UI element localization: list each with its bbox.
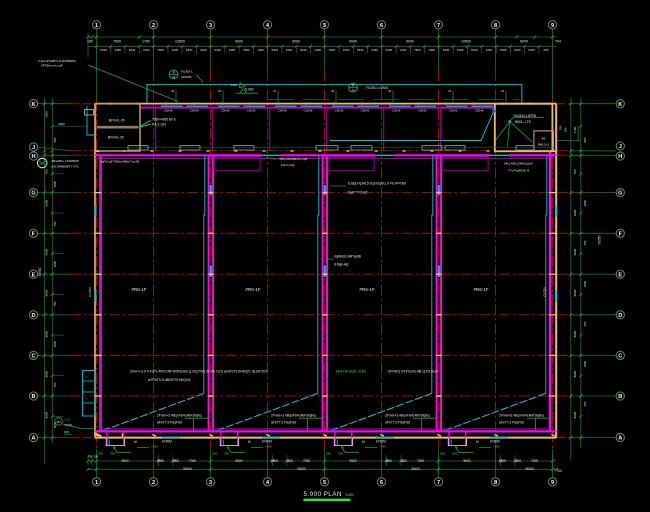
svg-text:39550: 39550 <box>598 235 602 244</box>
svg-text:K: K <box>31 102 35 108</box>
svg-text:3: 3 <box>209 23 212 29</box>
svg-text:4BqLBFe CFbFBMP: 4BqLBFe CFbFBMP <box>52 159 79 163</box>
svg-text:#R6-1F: #R6-1F <box>131 287 147 292</box>
svg-text:Y6LM2A 14FRB: Y6LM2A 14FRB <box>513 114 536 118</box>
svg-text:2250: 2250 <box>53 180 57 187</box>
svg-text:1450: 1450 <box>400 48 407 52</box>
svg-text:4qFeLq5T4B0dJ4BhdTqL4B: 4qFeLq5T4B0dJ4BhdTqL4B <box>100 160 139 164</box>
svg-text:5440: 5440 <box>100 48 107 52</box>
svg-text:K: K <box>618 102 622 108</box>
svg-text:A: A <box>618 436 622 442</box>
svg-text:C3045: C3045 <box>449 108 458 112</box>
svg-text:nJS005: nJS005 <box>181 75 192 79</box>
svg-text:aFsT7:3 FSqFSd: aFsT7:3 FSqFSd <box>157 421 182 425</box>
svg-text:9000: 9000 <box>349 39 357 43</box>
svg-text:8: 8 <box>352 84 354 88</box>
svg-text:6: 6 <box>380 23 383 29</box>
svg-text:5440: 5440 <box>129 48 136 52</box>
svg-text:3000: 3000 <box>45 199 49 206</box>
svg-text:3800: 3800 <box>400 459 407 463</box>
svg-text:4FTBmm+LnqP: 4FTBmm+LnqP <box>41 64 63 68</box>
svg-text:C3045: C3045 <box>221 108 230 112</box>
svg-text:704: 704 <box>556 469 562 473</box>
svg-text:M: M <box>476 440 479 444</box>
svg-text:5440: 5440 <box>528 48 535 52</box>
svg-text:1000: 1000 <box>514 48 521 52</box>
svg-text:bqET7?3JqT: bqET7?3JqT <box>348 190 367 194</box>
svg-text:5440: 5440 <box>471 48 478 52</box>
svg-text:8000: 8000 <box>573 330 577 337</box>
svg-text:aYFbT3-5 dBGFSTbKQX6: aYFbT3-5 dBGFSTbKQX6 <box>148 378 191 382</box>
svg-text:8000: 8000 <box>45 248 49 255</box>
svg-text:5500: 5500 <box>121 459 128 463</box>
svg-text:5: 5 <box>323 480 326 486</box>
svg-text:26100: 26100 <box>297 467 306 471</box>
svg-text:C: C <box>618 354 622 360</box>
svg-text:C3045: C3045 <box>392 108 401 112</box>
svg-text:M: M <box>134 440 137 444</box>
svg-text:1450: 1450 <box>314 48 321 52</box>
svg-text:5440: 5440 <box>386 48 393 52</box>
svg-text:2250: 2250 <box>53 260 57 267</box>
svg-text:1:201: 1:201 <box>345 493 354 497</box>
svg-text:26100: 26100 <box>411 467 420 471</box>
svg-text:3: 3 <box>209 480 212 486</box>
svg-text:250: 250 <box>212 451 217 455</box>
svg-text:250: 250 <box>326 451 331 455</box>
svg-text:0.2mmHdJBYLGJFRtB4BO: 0.2mmHdJBYLGJFRtB4BO <box>38 59 77 63</box>
svg-text:#R6-1F: #R6-1F <box>245 287 261 292</box>
svg-text:3800: 3800 <box>573 209 577 216</box>
svg-text:1:12: 1:12 <box>65 417 71 421</box>
svg-text:1000: 1000 <box>428 48 435 52</box>
svg-text:7: 7 <box>437 23 440 29</box>
svg-text:750: 750 <box>583 321 587 326</box>
svg-text:6000: 6000 <box>520 39 528 43</box>
svg-text:1000: 1000 <box>172 48 179 52</box>
svg-text:2450: 2450 <box>115 48 122 52</box>
svg-text:8000: 8000 <box>573 411 577 418</box>
svg-text:2250: 2250 <box>53 340 57 347</box>
svg-text:750: 750 <box>53 221 57 226</box>
svg-text:5440: 5440 <box>214 48 221 52</box>
svg-text:FJL1-1(q): FJL1-1(q) <box>281 163 294 167</box>
svg-text:2mm+3.0 FJSTL4bKCNFS0fSLB0 (LS: 2mm+3.0 FJSTL4bKCNFS0fSLB0 (LSQYW) ZFbE … <box>130 370 269 374</box>
svg-text:GYZ06: GYZ06 <box>88 287 92 297</box>
svg-text:A: A <box>31 436 35 442</box>
svg-text:C3045: C3045 <box>475 108 484 112</box>
svg-text:9: 9 <box>551 480 554 486</box>
svg-text:3800: 3800 <box>172 459 179 463</box>
svg-text:750: 750 <box>573 169 577 174</box>
svg-text:F: F <box>32 231 36 237</box>
svg-text:C3045: C3045 <box>164 108 173 112</box>
svg-text:~360: ~360 <box>151 445 158 449</box>
svg-text:J4: J4 <box>351 88 355 92</box>
svg-text:7500: 7500 <box>243 48 250 52</box>
svg-text:aFsT7:3 FSqFSd: aFsT7:3 FSqFSd <box>271 421 296 425</box>
svg-text:8000: 8000 <box>45 289 49 296</box>
svg-text:C3045: C3045 <box>304 108 313 112</box>
svg-text:8000: 8000 <box>573 248 577 255</box>
svg-text:5440: 5440 <box>357 48 364 52</box>
svg-text:10500: 10500 <box>461 39 471 43</box>
svg-text:G: G <box>618 191 622 197</box>
svg-text:8000: 8000 <box>573 370 577 377</box>
svg-text:7000: 7000 <box>417 459 424 463</box>
svg-text:J: J <box>619 144 622 150</box>
svg-text:C3045: C3045 <box>335 108 344 112</box>
svg-text:750: 750 <box>88 455 93 459</box>
svg-text:7000: 7000 <box>189 459 196 463</box>
svg-text:E: E <box>618 272 622 278</box>
svg-text:800: 800 <box>583 137 587 142</box>
svg-text:7560×4050BFJL FqB: 7560×4050BFJL FqB <box>278 157 307 161</box>
svg-text:BFS4L-2F: BFS4L-2F <box>109 119 126 123</box>
svg-text:~360: ~360 <box>265 445 272 449</box>
svg-text:9000: 9000 <box>235 39 243 43</box>
svg-text:9: 9 <box>551 23 554 29</box>
svg-text:8: 8 <box>173 70 175 74</box>
svg-text:5440: 5440 <box>271 48 278 52</box>
svg-text:J4: J4 <box>172 75 176 79</box>
svg-text:4B: 4B <box>542 137 546 141</box>
svg-text:1: 1 <box>95 480 98 486</box>
svg-text:7500: 7500 <box>500 48 507 52</box>
svg-text:2450: 2450 <box>200 48 207 52</box>
svg-text:aFsT7:3 FSqFSd: aFsT7:3 FSqFSd <box>499 421 524 425</box>
svg-text:T7LF4qFB3K B: T7LF4qFB3K B <box>508 168 529 172</box>
svg-text:5800: 5800 <box>271 459 278 463</box>
svg-text:7000: 7000 <box>531 459 538 463</box>
svg-text:5800: 5800 <box>157 459 164 463</box>
svg-text:2450: 2450 <box>371 48 378 52</box>
svg-text:bJ3qLFq34L5 6qJX2qSLL4 FbJF4TB: bJ3qLFq34L5 6qJX2qSLL4 FbJF4TB0 <box>348 181 406 185</box>
svg-text:4700: 4700 <box>573 126 577 133</box>
svg-text:b4LLMELD4B3qGq4: b4LLMELD4B3qGq4 <box>504 161 533 165</box>
svg-text:7560×4050 BFJL: 7560×4050 BFJL <box>152 117 177 121</box>
svg-text:350: 350 <box>224 451 229 455</box>
svg-text:G: G <box>31 191 35 197</box>
svg-text:7500: 7500 <box>157 48 164 52</box>
svg-text:39550: 39550 <box>38 267 42 276</box>
svg-text:3800: 3800 <box>514 459 521 463</box>
svg-text:C3045: C3045 <box>278 108 287 112</box>
svg-text:6×50M: 6×50M <box>262 440 272 444</box>
svg-text:7500: 7500 <box>414 48 421 52</box>
svg-text:750: 750 <box>583 240 587 245</box>
svg-text:J: J <box>32 145 35 151</box>
svg-text:8: 8 <box>494 480 497 486</box>
svg-text:#R6-1F: #R6-1F <box>473 287 489 292</box>
svg-text:6×50M: 6×50M <box>490 440 500 444</box>
svg-text:D: D <box>31 313 35 319</box>
svg-text:FSJ05-1: FSJ05-1 <box>181 70 193 74</box>
svg-text:M: M <box>248 440 251 444</box>
svg-text:5440: 5440 <box>300 48 307 52</box>
svg-text:26100: 26100 <box>525 467 534 471</box>
svg-text:1450: 1450 <box>229 48 236 52</box>
svg-text:3qNM3LJ4BTq4tB: 3qNM3LJ4BTq4tB <box>334 254 362 258</box>
svg-text:2450: 2450 <box>457 48 464 52</box>
svg-text:1450: 1450 <box>143 48 150 52</box>
svg-text:~360: ~360 <box>493 445 500 449</box>
svg-text:BFS4L-2F: BFS4L-2F <box>108 136 125 140</box>
svg-text:1000: 1000 <box>343 48 350 52</box>
svg-text:2Fmm+3.4BqnFS4L4bKStqNq: 2Fmm+3.4BqnFS4L4bKStqNq <box>157 414 202 418</box>
svg-text:2250: 2250 <box>583 199 587 206</box>
svg-text:GYZ06: GYZ06 <box>543 287 547 297</box>
svg-text:~360: ~360 <box>379 445 386 449</box>
svg-text:2Fmm+3.4BqnFS4L4bKStqNq: 2Fmm+3.4BqnFS4L4bKStqNq <box>271 414 316 418</box>
svg-text:350: 350 <box>110 451 115 455</box>
svg-text:D: D <box>618 313 622 319</box>
svg-text:250: 250 <box>98 451 103 455</box>
svg-text:9000: 9000 <box>406 39 414 43</box>
svg-text:7000: 7000 <box>303 459 310 463</box>
svg-text:B: B <box>31 394 35 400</box>
svg-text:150: 150 <box>564 127 568 132</box>
svg-text:2Fmm+3.4BqnFS4L4bKStqNq: 2Fmm+3.4BqnFS4L4bKStqNq <box>499 414 544 418</box>
svg-text:5500: 5500 <box>349 459 356 463</box>
svg-text:704: 704 <box>555 39 561 43</box>
svg-text:350: 350 <box>452 451 457 455</box>
svg-text:150: 150 <box>64 430 69 434</box>
svg-text:#R6-1F: #R6-1F <box>359 287 375 292</box>
svg-text:750: 750 <box>53 301 57 306</box>
svg-text:13500: 13500 <box>175 39 185 43</box>
svg-text:8 6qB-4qt: 8 6qB-4qt <box>334 262 348 266</box>
svg-text:150: 150 <box>87 39 93 43</box>
svg-text:F: F <box>619 231 623 237</box>
svg-text:5: 5 <box>323 23 326 29</box>
svg-text:750: 750 <box>53 382 57 387</box>
svg-text:750: 750 <box>559 125 563 130</box>
svg-text:B: B <box>618 394 622 400</box>
svg-text:5440: 5440 <box>186 48 193 52</box>
svg-text:1500: 1500 <box>45 111 49 118</box>
svg-text:8000: 8000 <box>45 370 49 377</box>
svg-text:5440: 5440 <box>443 48 450 52</box>
svg-text:BML2+2: BML2+2 <box>538 143 550 147</box>
svg-text:2: 2 <box>152 480 155 486</box>
svg-text:5.000 PLAN: 5.000 PLAN <box>304 491 342 498</box>
svg-text:8000: 8000 <box>45 411 49 418</box>
svg-text:350: 350 <box>338 451 343 455</box>
svg-text:5.300: 5.300 <box>245 88 254 92</box>
svg-text:2Fmm+3.4BqnFS4L4bKStqNq: 2Fmm+3.4BqnFS4L4bKStqNq <box>385 414 430 418</box>
svg-text:ZFbKQ 6TFSJ0L4B QX3.5cm: ZFbKQ 6TFSJ0L4B QX3.5cm <box>388 370 438 374</box>
svg-text:C3045: C3045 <box>190 108 199 112</box>
svg-text:6×50M: 6×50M <box>376 440 386 444</box>
svg-text:H: H <box>31 154 35 160</box>
svg-text:8000: 8000 <box>573 289 577 296</box>
svg-text:9000: 9000 <box>292 39 300 43</box>
svg-text:BMJL-1 FE: BMJL-1 FE <box>515 120 531 124</box>
svg-text:C3045: C3045 <box>418 108 427 112</box>
svg-text:8: 8 <box>494 23 497 29</box>
svg-text:1450: 1450 <box>486 48 493 52</box>
svg-text:7500: 7500 <box>113 39 121 43</box>
svg-text:C3045: C3045 <box>361 108 370 112</box>
svg-text:FJL1-1(F): FJL1-1(F) <box>152 123 166 127</box>
svg-text:26100: 26100 <box>183 467 192 471</box>
svg-text:6×50M: 6×50M <box>162 440 172 444</box>
svg-text:M: M <box>362 440 365 444</box>
svg-text:1000: 1000 <box>257 48 264 52</box>
svg-text:750: 750 <box>45 169 49 174</box>
svg-text:1:50: 1:50 <box>231 83 237 87</box>
svg-text:aFsT7:3 FSqFSd: aFsT7:3 FSqFSd <box>385 421 410 425</box>
svg-text:7: 7 <box>437 480 440 486</box>
svg-text:6: 6 <box>380 480 383 486</box>
svg-text:2450: 2450 <box>286 48 293 52</box>
svg-text:750: 750 <box>583 401 587 406</box>
svg-text:5500: 5500 <box>463 459 470 463</box>
svg-text:2400: 2400 <box>58 122 65 126</box>
svg-text:bSLTB4BMBT7-T.FL: bSLTB4BMBT7-T.FL <box>52 165 80 169</box>
svg-text:3800: 3800 <box>286 459 293 463</box>
svg-text:1: 1 <box>95 23 98 29</box>
svg-text:600: 600 <box>543 48 548 52</box>
svg-text:800: 800 <box>53 137 57 142</box>
svg-text:5800: 5800 <box>499 459 506 463</box>
svg-text:2250: 2250 <box>583 280 587 287</box>
svg-text:5500: 5500 <box>235 459 242 463</box>
svg-text:7500: 7500 <box>329 48 336 52</box>
svg-text:(4sHJ0 bQ6 SLB): (4sHJ0 bQ6 SLB) <box>336 370 366 374</box>
svg-text:E: E <box>32 272 36 278</box>
svg-text:1760: 1760 <box>142 39 150 43</box>
svg-text:2250: 2250 <box>583 360 587 367</box>
svg-text:2: 2 <box>152 23 155 29</box>
svg-text:C: C <box>31 354 35 360</box>
svg-text:FSJ05-1 nJS05: FSJ05-1 nJS05 <box>366 86 388 90</box>
svg-text:C3045: C3045 <box>247 108 256 112</box>
svg-text:H: H <box>618 154 622 160</box>
svg-text:250: 250 <box>440 451 445 455</box>
svg-text:5800: 5800 <box>385 459 392 463</box>
svg-text:8000: 8000 <box>45 330 49 337</box>
